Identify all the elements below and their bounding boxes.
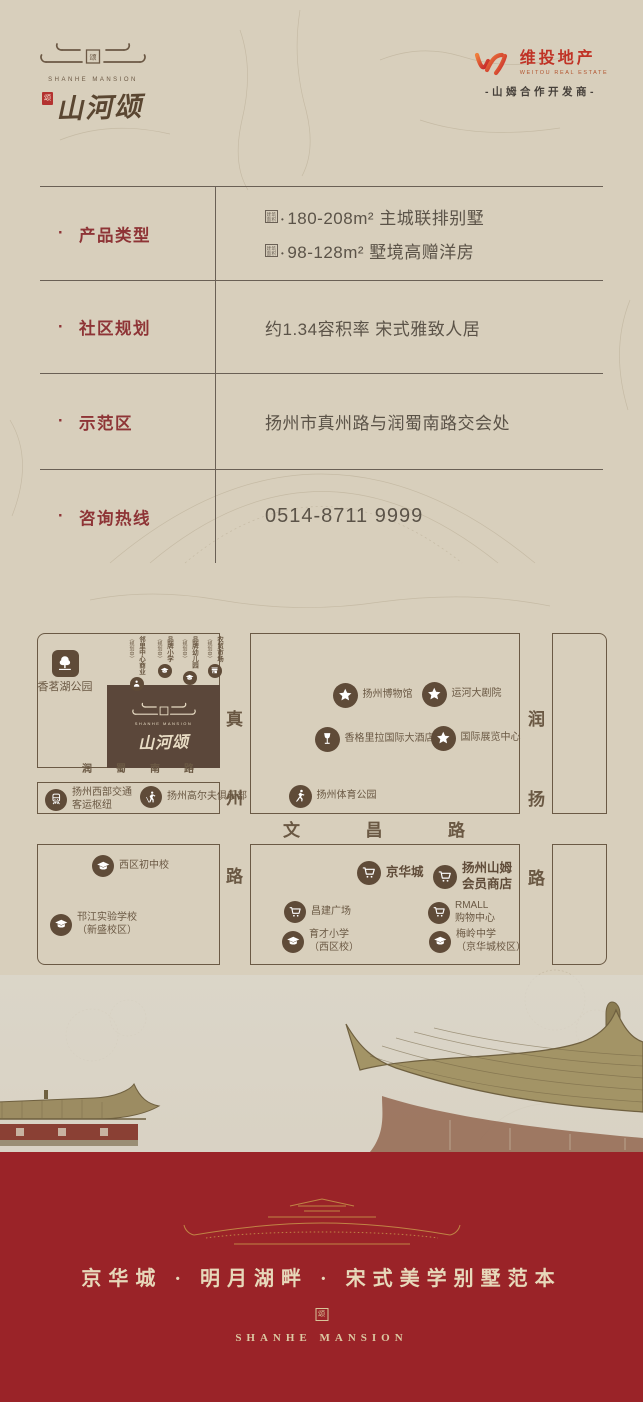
row-label: 咨询热线 xyxy=(40,470,215,563)
road-label-wenchang-road: 文昌路 xyxy=(283,818,465,839)
area-seal-icon: 建筑面积 xyxy=(265,244,278,257)
road-char: 路 xyxy=(226,862,243,887)
road-char: 州 xyxy=(226,784,243,809)
planned-facility-farmers-market: （规划中）农贸市场 xyxy=(204,636,226,678)
map-poi-jinghua-city-mall: 京华城 xyxy=(357,861,424,885)
area-seal-icon: 建筑面积 xyxy=(265,210,278,223)
map-poi-changjian-plaza: 昌建广场 xyxy=(284,901,351,923)
road-char: 扬 xyxy=(528,785,545,810)
poi-label: 香格里拉国际大酒店 xyxy=(345,733,435,746)
map-poi-west-transport-hub: 扬州西部交通客运枢纽 xyxy=(45,787,132,812)
poi-label: 育才小学（西区校） xyxy=(309,929,359,954)
poi-label: 京华城 xyxy=(386,865,424,881)
table-row: 示范区 扬州市真州路与润蜀南路交会处 xyxy=(40,373,603,469)
developer-name-cn: 维投地产 xyxy=(520,50,609,68)
project-name-en: SHANHE MANSION xyxy=(135,721,192,726)
map-block-east-upper xyxy=(552,633,607,814)
hotline-number: 0514-8711 9999 xyxy=(265,505,603,528)
cart-icon xyxy=(433,865,457,889)
project-name-cn: 山河颂 xyxy=(138,728,190,754)
cap-icon xyxy=(158,664,172,678)
road-char: 文 xyxy=(283,816,300,841)
footer-seal-icon: 颂 xyxy=(315,1308,328,1321)
poi-label: RMALL购物中心 xyxy=(455,900,495,925)
developer-partner-line: -山姆合作开发商- xyxy=(461,84,621,99)
star-icon xyxy=(333,683,358,708)
developer-name-en: WEITOU REAL ESTATE xyxy=(520,70,609,76)
brand-name-cn: 山河颂 xyxy=(55,84,143,126)
svg-text:颂: 颂 xyxy=(90,53,97,62)
map-poi-hanjiang-experimental-school: 邗江实验学校（新盛校区） xyxy=(50,912,137,937)
poi-label: 扬州山姆会员商店 xyxy=(462,861,512,892)
road-char: 路 xyxy=(528,864,545,889)
table-row: 咨询热线 0514-8711 9999 xyxy=(40,469,603,563)
person-icon xyxy=(130,677,144,691)
row-value: 约1.34容积率 宋式雅致人居 xyxy=(265,315,603,340)
map-poi-intl-exhibition-center: 国际展览中心 xyxy=(431,726,521,751)
road-char: 蜀 xyxy=(116,760,126,775)
road-label-runshu-south-road: 润蜀南路 xyxy=(82,760,194,774)
map-poi-yangzhou-sports-park: 扬州体育公园 xyxy=(289,785,377,808)
planned-facility-brand-kindergarten: （规划中）品牌幼儿园 xyxy=(179,636,201,685)
footer-roof-ornament xyxy=(172,1190,472,1248)
location-map: SHANHE MANSION 山河颂 （规划中）邻里中心商业（规划中）品牌小学（… xyxy=(37,633,607,965)
row-label: 产品类型 xyxy=(40,187,215,280)
poi-label: 扬州体育公园 xyxy=(317,790,377,803)
map-block-east-lower xyxy=(552,844,607,965)
cap-icon xyxy=(50,914,72,936)
map-poi-canal-grand-theatre: 运河大剧院 xyxy=(422,682,502,707)
cap-icon xyxy=(282,931,304,953)
cart-icon xyxy=(284,901,306,923)
planned-note: （规划中） xyxy=(207,636,214,661)
brand-logo: 颂 SHANHE MANSION 颂 山河颂 xyxy=(38,40,188,125)
planned-label: 邻里中心商业 xyxy=(136,636,146,675)
planned-label: 农贸市场 xyxy=(214,636,224,662)
train-icon xyxy=(45,789,67,811)
road-char: 润 xyxy=(82,760,92,775)
cap-icon xyxy=(183,671,197,685)
cart-icon xyxy=(428,902,450,924)
row-label: 社区规划 xyxy=(40,281,215,373)
map-poi-sams-club-store: 扬州山姆会员商店 xyxy=(433,861,512,892)
road-char: 真 xyxy=(226,705,243,730)
cart-icon xyxy=(357,861,381,885)
road-char: 昌 xyxy=(366,816,383,841)
project-roof-icon xyxy=(131,701,197,719)
planned-facility-brand-primary-school: （规划中）品牌小学 xyxy=(154,636,176,678)
road-char: 路 xyxy=(448,816,465,841)
planned-note: （规划中） xyxy=(157,636,164,661)
market-icon xyxy=(208,664,222,678)
road-char: 路 xyxy=(184,760,194,775)
star-icon xyxy=(431,726,456,751)
cap-icon xyxy=(92,855,114,877)
map-poi-yucai-primary-school: 育才小学（西区校） xyxy=(282,929,359,954)
planned-note: （规划中） xyxy=(129,636,136,661)
row-value: 建筑面积 180-208m² 主城联排别墅 xyxy=(265,204,603,229)
brand-roof-icon: 颂 xyxy=(38,40,148,70)
right-roof-artwork xyxy=(330,1000,643,1153)
poi-label: 香茗湖公园 xyxy=(38,681,93,695)
row-value: 建筑面积 98-128m² 墅境高赠洋房 xyxy=(265,238,603,263)
poi-label: 扬州博物馆 xyxy=(363,689,413,702)
runner-icon xyxy=(289,785,312,808)
map-poi-xiangming-lake-park: 香茗湖公园 xyxy=(52,650,93,695)
planned-label: 品牌幼儿园 xyxy=(189,636,199,669)
info-table: 产品类型 建筑面积 180-208m² 主城联排别墅 建筑面积 98-128m²… xyxy=(40,186,603,563)
wine-icon xyxy=(315,727,340,752)
cap-icon xyxy=(429,931,451,953)
poi-label: 扬州西部交通客运枢纽 xyxy=(72,787,132,812)
map-poi-west-district-middle-school: 西区初中校 xyxy=(92,855,169,877)
planned-facility-neighborhood-center: （规划中）邻里中心商业 xyxy=(126,636,148,691)
poi-label: 邗江实验学校（新盛校区） xyxy=(77,912,137,937)
poi-label: 国际展览中心 xyxy=(461,732,521,745)
poi-label: 西区初中校 xyxy=(119,860,169,873)
tree-icon xyxy=(52,650,79,677)
poster: 颂 SHANHE MANSION 颂 山河颂 xyxy=(0,0,643,1402)
table-row: 产品类型 建筑面积 180-208m² 主城联排别墅 建筑面积 98-128m²… xyxy=(40,186,603,280)
planned-note: （规划中） xyxy=(182,636,189,661)
footer-brand-en: SHANHE MANSION xyxy=(0,1332,643,1344)
poi-label: 运河大剧院 xyxy=(452,688,502,701)
poi-label: 昌建广场 xyxy=(311,906,351,919)
planned-label: 品牌小学 xyxy=(164,636,174,662)
left-roof-artwork xyxy=(0,1082,216,1154)
table-divider xyxy=(215,186,216,563)
star-icon xyxy=(422,682,447,707)
road-label-runyang-road: 润扬路 xyxy=(524,705,549,889)
row-value: 扬州市真州路与润蜀南路交会处 xyxy=(265,409,603,434)
developer-monogram-icon xyxy=(474,48,514,78)
road-char: 南 xyxy=(150,760,160,775)
brand-name-en: SHANHE MANSION xyxy=(38,77,148,83)
row-label: 示范区 xyxy=(40,374,215,469)
golf-icon xyxy=(140,786,162,808)
road-char: 润 xyxy=(528,705,545,730)
map-poi-shangri-la-hotel: 香格里拉国际大酒店 xyxy=(315,727,435,752)
brand-seal-icon: 颂 xyxy=(42,92,53,105)
map-poi-rmall-shopping-center: RMALL购物中心 xyxy=(428,900,495,925)
table-row: 社区规划 约1.34容积率 宋式雅致人居 xyxy=(40,280,603,373)
project-location-box: SHANHE MANSION 山河颂 xyxy=(107,685,220,768)
road-label-zhenzhou-road: 真州路 xyxy=(222,705,247,887)
poi-label: 梅岭中学（京华城校区） xyxy=(456,929,526,954)
map-poi-meiling-middle-school: 梅岭中学（京华城校区） xyxy=(429,929,526,954)
developer-logo: 维投地产 WEITOU REAL ESTATE -山姆合作开发商- xyxy=(461,48,621,99)
footer-tagline: 京华城 · 明月湖畔 · 宋式美学别墅范本 xyxy=(0,1262,643,1291)
map-poi-yangzhou-museum: 扬州博物馆 xyxy=(333,683,413,708)
